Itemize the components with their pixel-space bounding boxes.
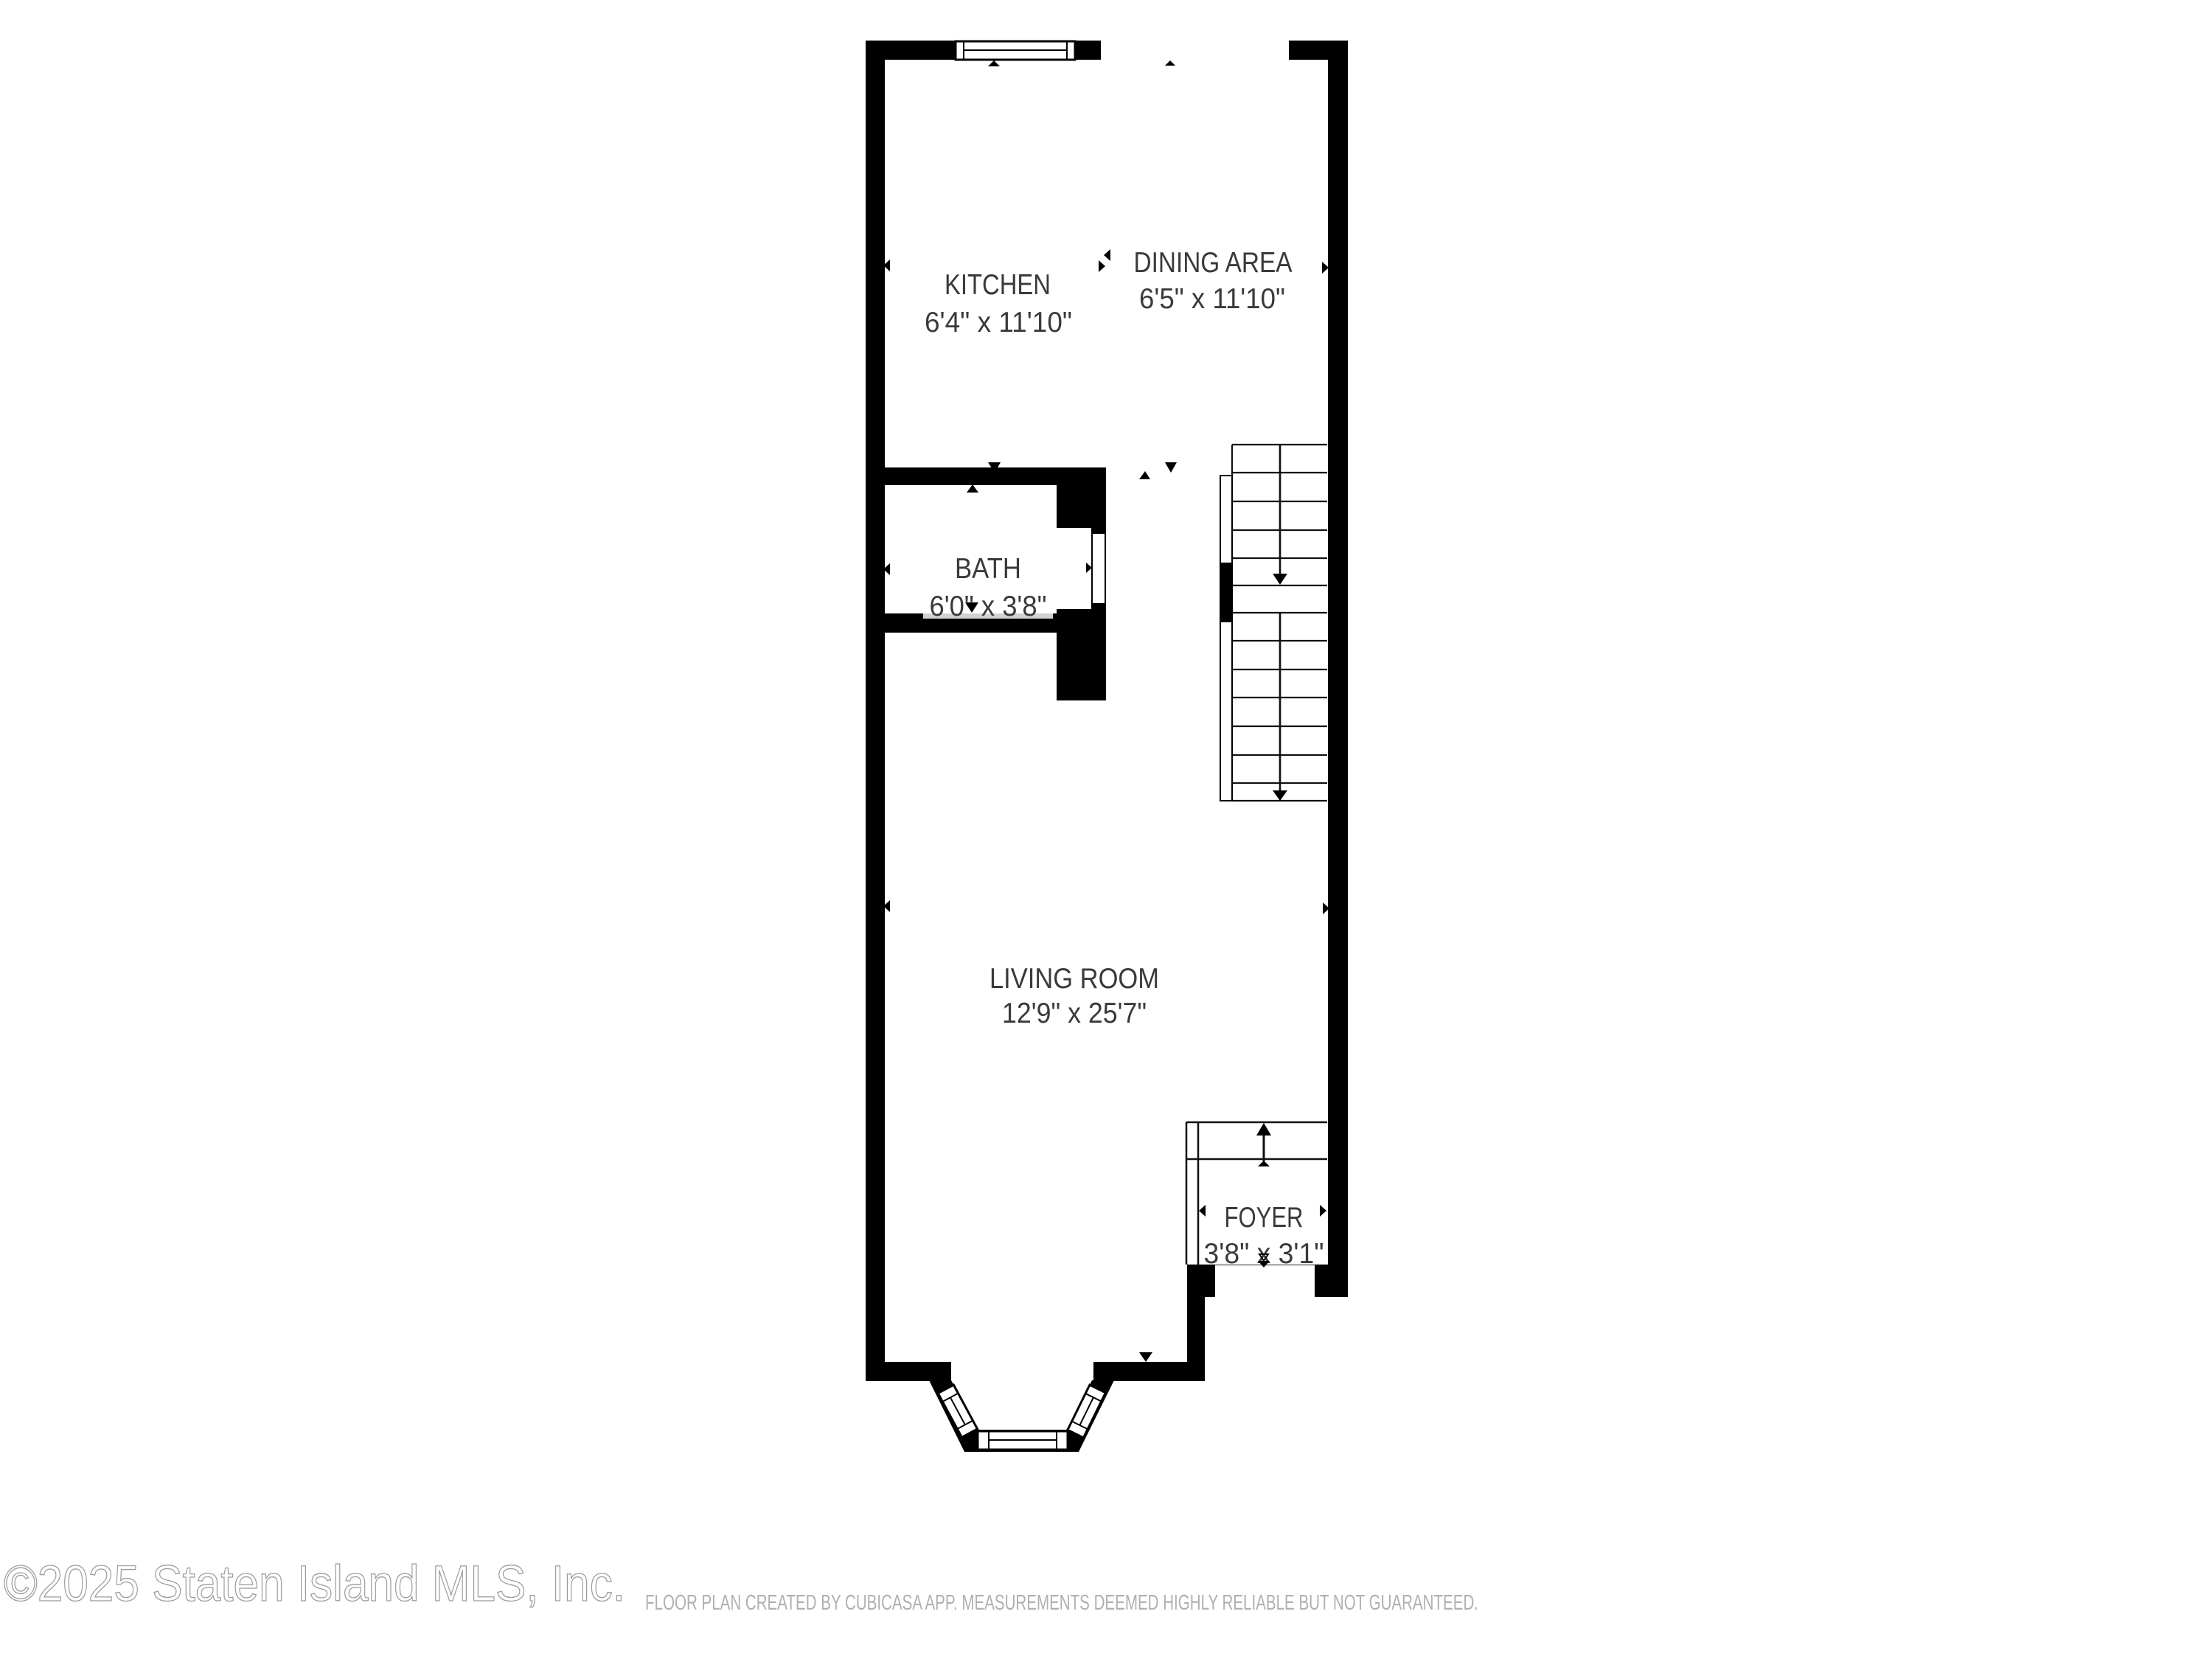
svg-text:12'9" x 25'7": 12'9" x 25'7": [1002, 998, 1147, 1029]
svg-text:DINING AREA: DINING AREA: [1134, 247, 1293, 279]
svg-text:FLOOR PLAN CREATED BY CUBICASA: FLOOR PLAN CREATED BY CUBICASA APP. MEAS…: [645, 1591, 1478, 1615]
svg-text:6'0" x 3'8": 6'0" x 3'8": [930, 591, 1047, 622]
svg-text:©2025 Staten Island MLS, Inc.: ©2025 Staten Island MLS, Inc.: [4, 1555, 625, 1612]
svg-text:6'5" x 11'10": 6'5" x 11'10": [1139, 283, 1285, 315]
svg-text:6'4" x 11'10": 6'4" x 11'10": [925, 307, 1072, 338]
svg-text:BATH: BATH: [955, 553, 1021, 585]
svg-text:FOYER: FOYER: [1225, 1202, 1304, 1234]
svg-text:KITCHEN: KITCHEN: [945, 269, 1051, 301]
svg-text:LIVING ROOM: LIVING ROOM: [990, 963, 1159, 995]
